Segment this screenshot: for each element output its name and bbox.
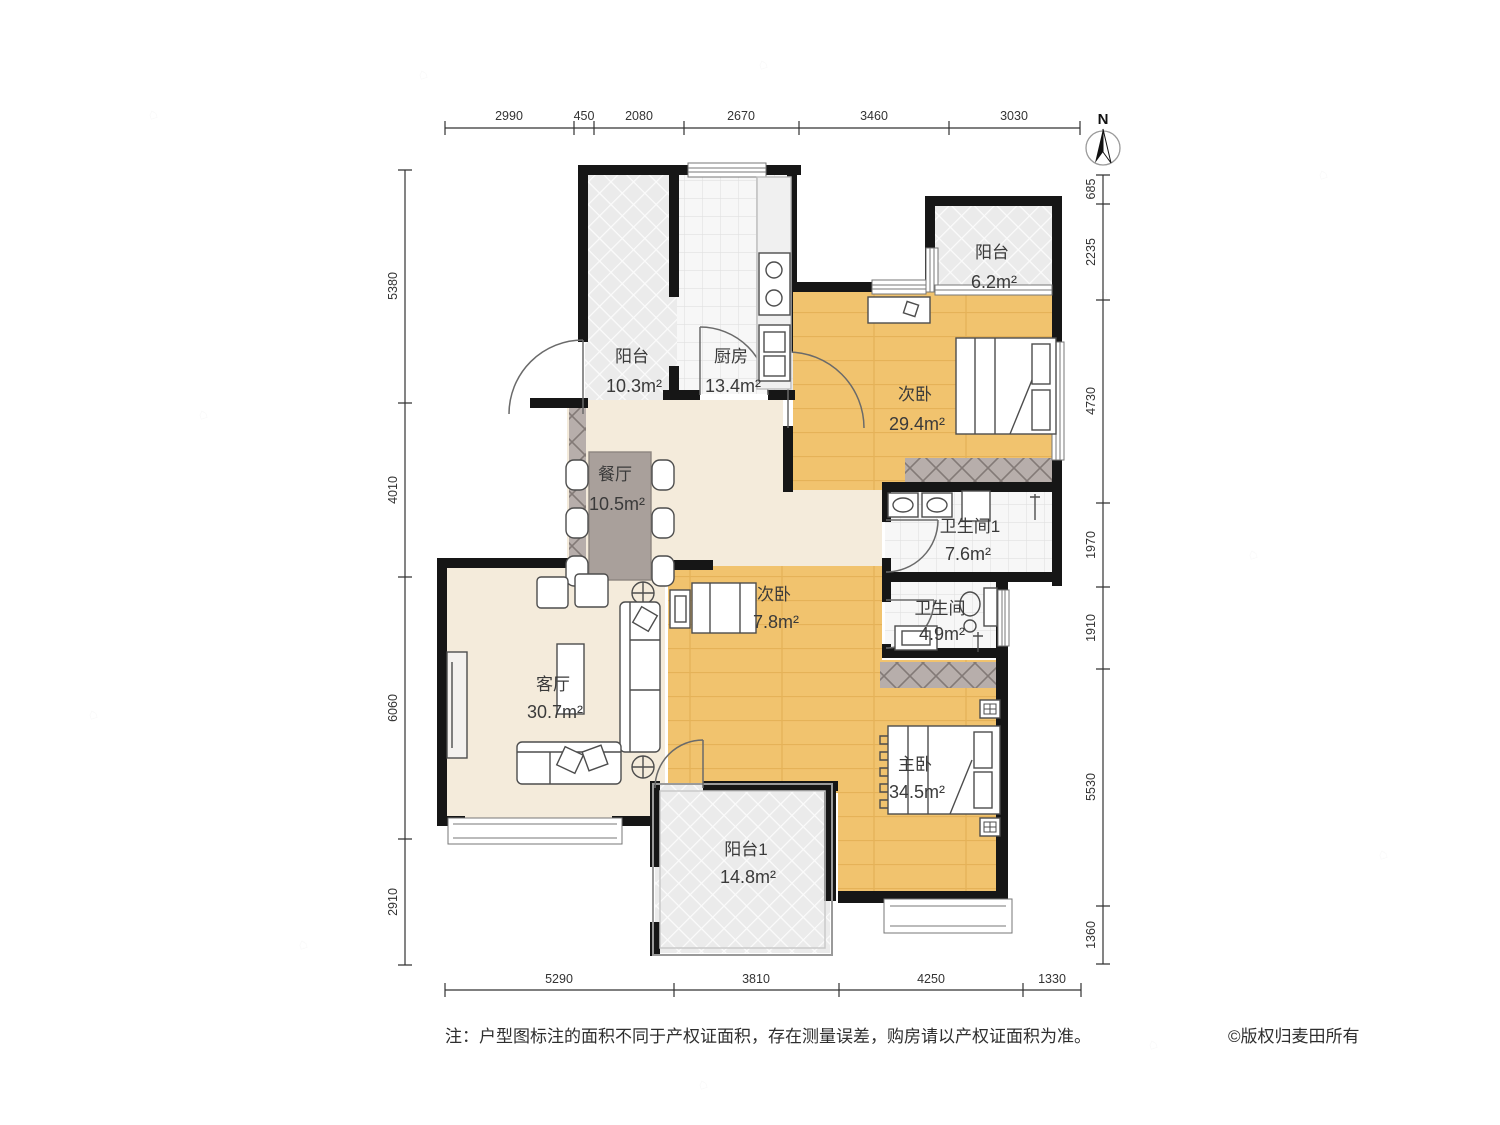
- sofa-long-icon: [620, 602, 660, 752]
- dim-right-5: 5530: [1084, 773, 1098, 801]
- floorplan-canvas: ⌂ ⌂ ⌂ ⌂ ⌂ ⌂ ⌂ ⌂ ⌂ ⌂ ⌂ ⌂: [0, 0, 1500, 1125]
- svg-text:⌂: ⌂: [146, 105, 160, 124]
- living-bay-window: [448, 818, 622, 844]
- dim-right-4: 1910: [1084, 614, 1098, 642]
- footer: 注：户型图标注的面积不同于产权证面积，存在测量误差，购房请以产权证面积为准。 ©…: [445, 1027, 1360, 1046]
- dim-bottom-0: 5290: [545, 972, 573, 986]
- label-balcony-tr-area: 6.2m²: [971, 272, 1017, 292]
- svg-text:⌂: ⌂: [196, 405, 210, 424]
- svg-text:⌂: ⌂: [1246, 545, 1260, 564]
- label-bedroom2-small-name: 次卧: [757, 585, 791, 604]
- label-master-area: 34.5m²: [889, 782, 945, 802]
- svg-text:⌂: ⌂: [86, 705, 100, 724]
- dim-top-4: 3460: [860, 109, 888, 123]
- bath2-right-window: [998, 590, 1009, 646]
- dim-top-3: 2670: [727, 109, 755, 123]
- dim-left-0: 5380: [386, 272, 400, 300]
- svg-text:⌂: ⌂: [1316, 165, 1330, 184]
- dim-right-0: 685: [1084, 179, 1098, 200]
- dim-right-1: 2235: [1084, 238, 1098, 266]
- wardrobe-master: [880, 662, 998, 688]
- dim-top-1: 450: [574, 109, 595, 123]
- label-dining-area: 10.5m²: [589, 494, 645, 514]
- svg-text:⌂: ⌂: [756, 55, 770, 74]
- dim-top-0: 2990: [495, 109, 523, 123]
- label-balcony-tr-name: 阳台: [975, 243, 1009, 262]
- dim-right-2: 4730: [1084, 387, 1098, 415]
- label-living-name: 客厅: [536, 675, 570, 694]
- label-living-area: 30.7m²: [527, 702, 583, 722]
- label-bath1-area: 7.6m²: [945, 544, 991, 564]
- svg-text:⌂: ⌂: [1146, 1035, 1160, 1054]
- label-balcony1-area: 14.8m²: [720, 867, 776, 887]
- dim-left-3: 2910: [386, 888, 400, 916]
- label-bath1-name: 卫生间1: [940, 517, 1000, 536]
- footer-copyright: ©版权归麦田所有: [1228, 1027, 1360, 1046]
- kitchen-top-window: [688, 163, 766, 177]
- label-balcony1-name: 阳台1: [724, 840, 767, 859]
- dim-left-1: 4010: [386, 476, 400, 504]
- label-balcony-tl-area: 10.3m²: [606, 376, 662, 396]
- footer-note: 注：户型图标注的面积不同于产权证面积，存在测量误差，购房请以产权证面积为准。: [445, 1027, 1091, 1046]
- kitchen-counter-icon: [757, 177, 791, 389]
- dim-top-2: 2080: [625, 109, 653, 123]
- bed-large-icon: [956, 338, 1056, 434]
- dim-top-5: 3030: [1000, 109, 1028, 123]
- label-bath2-name: 卫生间: [915, 599, 966, 618]
- label-kitchen-name: 厨房: [714, 347, 748, 366]
- label-master-name: 主卧: [898, 755, 932, 774]
- svg-text:⌂: ⌂: [1376, 845, 1390, 864]
- dim-bottom-3: 1330: [1038, 972, 1066, 986]
- compass-icon: N: [1086, 111, 1120, 165]
- label-kitchen-area: 13.4m²: [705, 376, 761, 396]
- svg-text:⌂: ⌂: [416, 65, 430, 84]
- bed-small-icon: [670, 583, 756, 633]
- master-bay-window: [884, 899, 1012, 933]
- label-bath2-area: 4.9m²: [919, 624, 965, 644]
- label-balcony-tl-name: 阳台: [615, 347, 649, 366]
- label-bedroom2-large-area: 29.4m²: [889, 414, 945, 434]
- dim-bottom-2: 4250: [917, 972, 945, 986]
- dim-right-6: 1360: [1084, 921, 1098, 949]
- desk-icon: [868, 297, 930, 323]
- sofa-short-icon: [517, 742, 621, 784]
- svg-text:⌂: ⌂: [696, 1075, 710, 1094]
- label-bedroom2-small-area: 7.8m²: [753, 612, 799, 632]
- bedroom2-top-window: [872, 280, 926, 294]
- dim-left-2: 6060: [386, 694, 400, 722]
- dim-bottom-1: 3810: [742, 972, 770, 986]
- label-bedroom2-large-name: 次卧: [898, 385, 932, 404]
- label-dining-name: 餐厅: [598, 465, 632, 484]
- svg-text:⌂: ⌂: [296, 935, 310, 954]
- compass-north-label: N: [1098, 111, 1109, 128]
- dim-right-3: 1970: [1084, 531, 1098, 559]
- tv-cabinet-icon: [447, 652, 467, 758]
